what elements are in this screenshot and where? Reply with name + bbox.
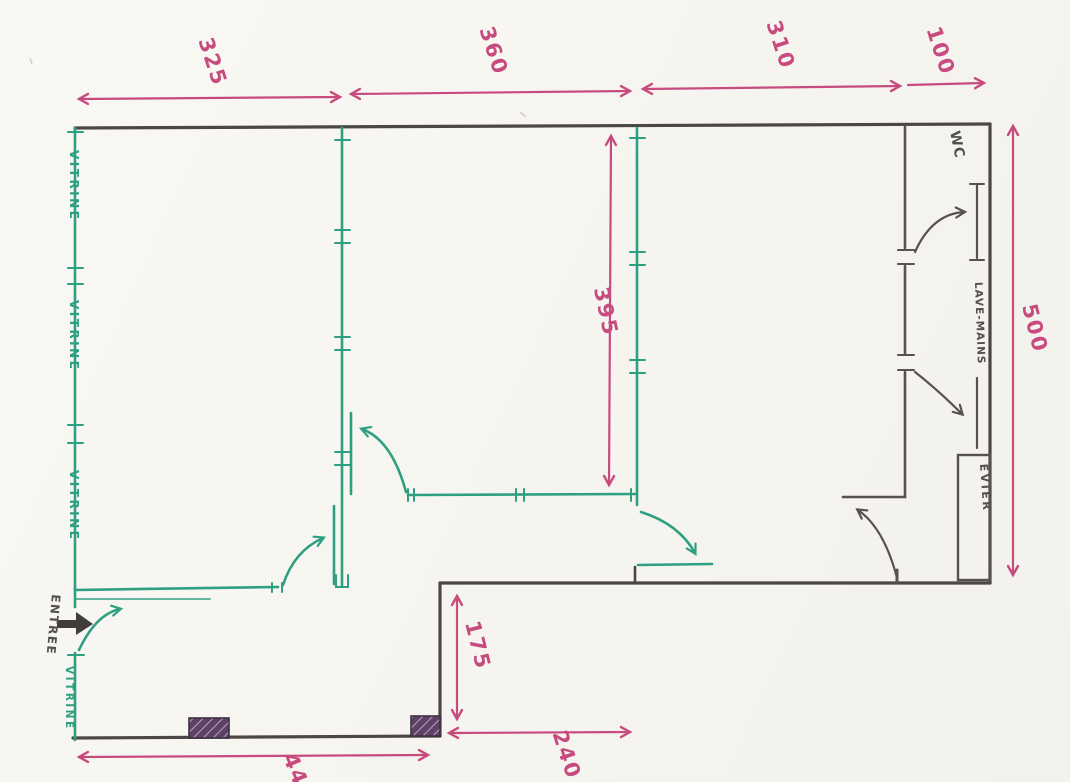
door-leaf-rear-passage	[638, 564, 712, 565]
vitrine-label-4: VITRINE	[63, 666, 75, 731]
dim-line-top-2	[352, 91, 629, 94]
post-left	[189, 718, 229, 738]
dimension-labels: 325 360 310 100 500 395 175 240 440	[194, 17, 1053, 782]
vitrine-label-3: VITRINE	[67, 470, 81, 541]
door-arc-middle-room	[362, 429, 406, 492]
dim-label-500: 500	[1017, 301, 1052, 355]
entrance-arrow-icon	[57, 612, 93, 635]
dim-label-395: 395	[589, 285, 623, 339]
dim-line-top-1	[80, 97, 339, 99]
door-arc-backroom	[858, 510, 897, 578]
dimension-lines	[80, 83, 1013, 757]
dim-line-bottom	[80, 755, 427, 757]
door-arc-rear-passage	[641, 512, 695, 553]
dim-line-recess-h	[450, 732, 629, 733]
dim-line-top-3	[644, 86, 899, 89]
wall-showroom-bottom	[75, 587, 278, 590]
wall-bottom-lower	[73, 736, 440, 738]
green-walls	[68, 128, 712, 740]
outer-walls	[73, 124, 990, 738]
dim-label-100: 100	[922, 23, 960, 78]
dim-label-360: 360	[475, 23, 513, 78]
dim-label-175: 175	[460, 618, 495, 672]
lave-mains-label: LAVE-MAINS	[972, 282, 987, 365]
post-right	[411, 716, 440, 736]
dim-line-top-4	[908, 83, 983, 85]
dim-label-310: 310	[762, 17, 800, 72]
evier-label: EVIER	[977, 463, 993, 512]
wall-top	[75, 124, 990, 128]
vitrine-label-1: VITRINE	[67, 150, 81, 221]
wc-partition-walls	[843, 127, 984, 497]
entree-label: ENTREE	[44, 594, 63, 656]
vitrine-label-2: VITRINE	[67, 300, 81, 371]
dim-label-240: 240	[548, 727, 586, 782]
wc-label: WC	[946, 130, 967, 160]
door-arc-lavemains	[915, 372, 962, 414]
room-labels: VITRINE VITRINE VITRINE VITRINE ENTREE W…	[44, 130, 994, 731]
floor-plan-canvas: 325 360 310 100 500 395 175 240 440 VITR…	[0, 0, 1070, 782]
door-arc-entrance	[79, 609, 120, 650]
wall-middle-horizontal	[408, 494, 637, 495]
scanned-floor-plan: 325 360 310 100 500 395 175 240 440 VITR…	[0, 0, 1070, 782]
door-arc-showroom	[283, 538, 323, 585]
dim-label-325: 325	[194, 34, 232, 89]
door-arc-wc	[915, 212, 964, 252]
scan-artifacts	[30, 58, 526, 117]
